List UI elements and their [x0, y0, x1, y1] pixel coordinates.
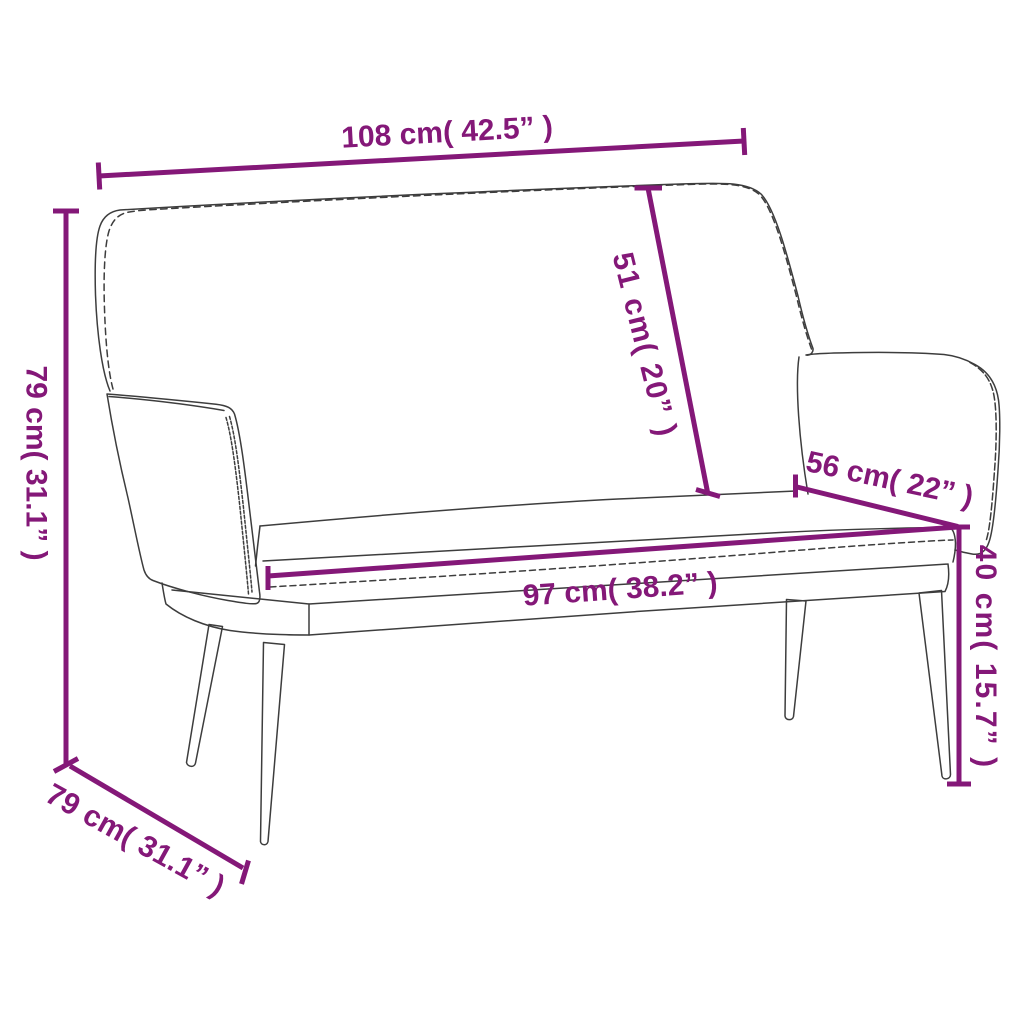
svg-text:79 cm( 31.1” ): 79 cm( 31.1” ): [20, 365, 53, 560]
svg-text:79 cm( 31.1” ): 79 cm( 31.1” ): [40, 778, 230, 903]
svg-text:56 cm( 22” ): 56 cm( 22” ): [803, 445, 976, 513]
svg-text:51 cm( 20” ): 51 cm( 20” ): [606, 249, 684, 441]
svg-text:97 cm( 38.2” ): 97 cm( 38.2” ): [522, 566, 719, 613]
svg-text:108 cm( 42.5” ): 108 cm( 42.5” ): [340, 110, 553, 154]
svg-text:40 cm( 15.7” ): 40 cm( 15.7” ): [969, 545, 1002, 770]
